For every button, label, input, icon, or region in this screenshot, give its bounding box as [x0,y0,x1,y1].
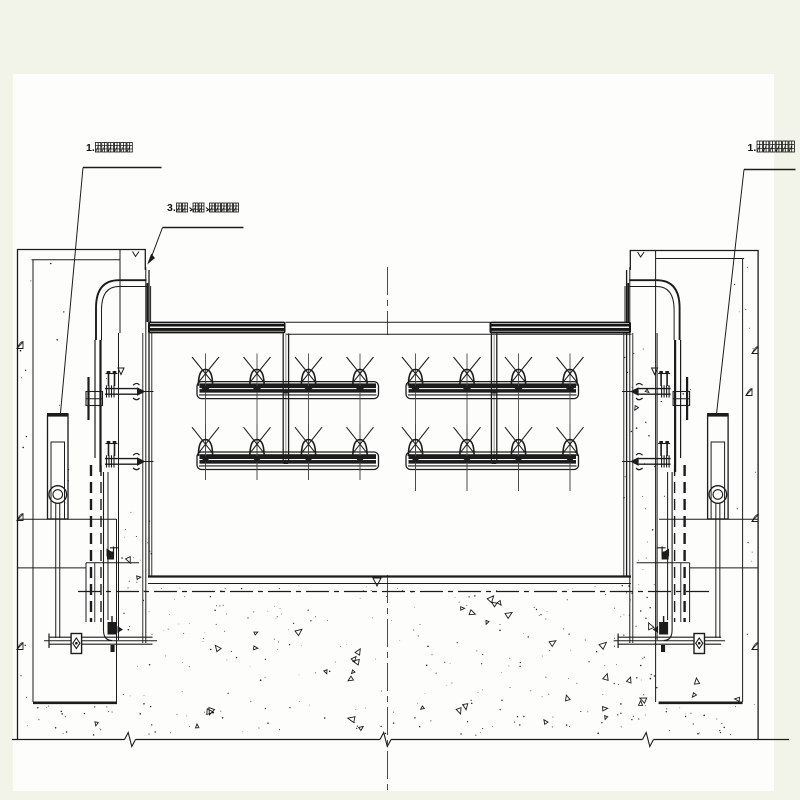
svg-text:1.: 1. [748,142,757,154]
svg-text:1.: 1. [86,142,95,154]
svg-text:3.: 3. [167,202,176,214]
